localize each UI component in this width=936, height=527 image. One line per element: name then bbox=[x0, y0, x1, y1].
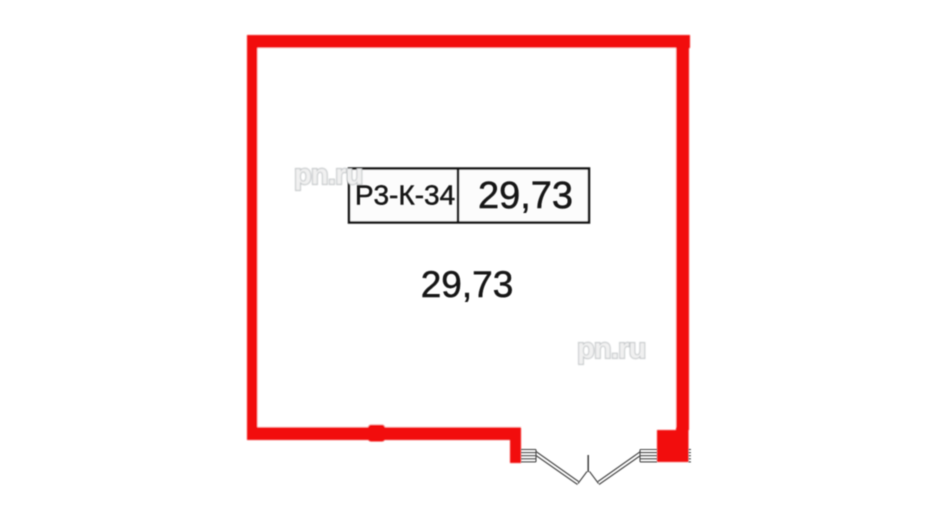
svg-text:pn.ru: pn.ru bbox=[294, 159, 363, 191]
svg-text:29,73: 29,73 bbox=[421, 264, 514, 305]
svg-text:Р3-К-34: Р3-К-34 bbox=[355, 180, 455, 211]
svg-text:pn.ru: pn.ru bbox=[577, 333, 646, 365]
svg-text:29,73: 29,73 bbox=[478, 175, 573, 217]
